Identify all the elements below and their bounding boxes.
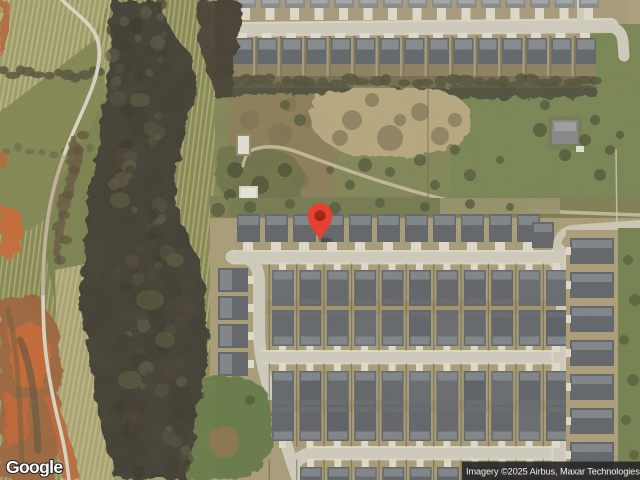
svg-text:Google: Google	[6, 457, 63, 477]
svg-text:Imagery ©2025 Airbus, Maxar Te: Imagery ©2025 Airbus, Maxar Technologies	[466, 467, 640, 477]
